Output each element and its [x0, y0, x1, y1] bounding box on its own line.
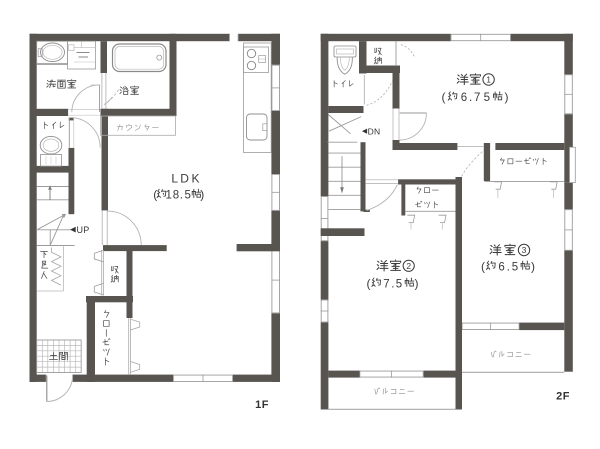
svg-text:): )	[531, 259, 535, 273]
svg-text:5: 5	[396, 278, 402, 290]
svg-text:.: .	[180, 189, 183, 201]
svg-text:UP: UP	[77, 225, 90, 235]
svg-text:7: 7	[474, 92, 480, 104]
svg-text:7: 7	[383, 278, 389, 290]
svg-text:1F: 1F	[255, 399, 269, 411]
svg-text:(: (	[442, 90, 446, 104]
svg-text:): )	[200, 187, 204, 201]
svg-text:5: 5	[484, 92, 490, 104]
svg-text:.: .	[507, 261, 510, 273]
svg-text:.: .	[391, 278, 394, 290]
svg-text:L: L	[171, 171, 178, 185]
svg-text:D: D	[180, 171, 189, 185]
svg-text:6: 6	[498, 261, 504, 273]
svg-text:5: 5	[512, 261, 518, 273]
svg-text:5: 5	[184, 189, 190, 201]
svg-text:(: (	[367, 276, 371, 290]
svg-text:): )	[415, 276, 419, 290]
svg-text:.: .	[469, 92, 472, 104]
svg-text:K: K	[191, 171, 199, 185]
svg-text:1: 1	[486, 75, 491, 85]
svg-text:): )	[505, 90, 509, 104]
svg-text:8: 8	[173, 189, 179, 201]
svg-text:2F: 2F	[556, 391, 570, 403]
svg-text:1: 1	[165, 189, 171, 201]
svg-text:(: (	[153, 187, 157, 201]
svg-text:(: (	[481, 259, 485, 273]
svg-text:6: 6	[461, 92, 467, 104]
svg-text:3: 3	[522, 245, 527, 255]
svg-text:2: 2	[406, 261, 411, 271]
svg-text:DN: DN	[368, 126, 381, 136]
